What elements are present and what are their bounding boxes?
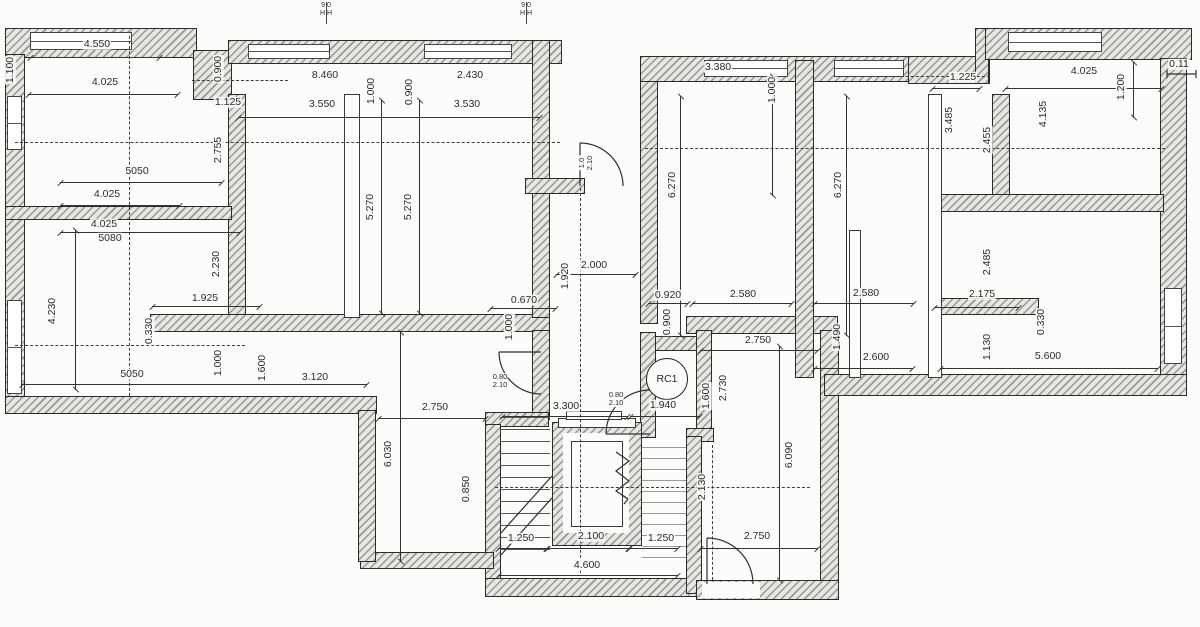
dimension-label: 2.430 [456, 70, 484, 81]
dimension-label: 0.900 [213, 55, 224, 83]
dimension-label: 2.580 [729, 289, 757, 300]
dimension-label: 1.920 [560, 262, 571, 290]
dimension-label: 1.200 [1116, 73, 1127, 101]
dimension-label: 0.900 [404, 78, 415, 106]
dimension-label: 2.750 [743, 531, 771, 542]
dimension-label: 4.025 [1070, 66, 1098, 77]
dimension-label: 0.330 [1036, 308, 1047, 336]
dimension-label: 5.270 [403, 193, 414, 221]
dimension-label: 4.025 [91, 77, 119, 88]
window-marker-label: 9 0 H H [320, 2, 332, 17]
dimension-label: 5080 [97, 233, 122, 244]
dimension-label: 5.270 [365, 193, 376, 221]
dimension-label: 0.11 [1168, 59, 1190, 70]
door-size-tag: 0.80 2.10 [609, 391, 624, 407]
dimension-label: 5050 [124, 166, 149, 177]
dimension-label: 3.120 [301, 372, 329, 383]
dimension-label: 8.460 [311, 70, 339, 81]
door-size-tag: 0.80 2.10 [493, 373, 508, 389]
dimension-label: 2.175 [968, 289, 996, 300]
stair-break-line [500, 476, 552, 556]
dimension-label: 3.530 [453, 99, 481, 110]
dimension-label: 1.000 [504, 313, 515, 341]
dimension-label: 2.600 [862, 352, 890, 363]
arrow-head [622, 495, 628, 504]
dimension-label: 1.490 [832, 323, 843, 351]
dimension-label: 6.270 [667, 171, 678, 199]
dimension-label: 2.100 [577, 531, 605, 542]
dimension-label: 1.925 [191, 293, 219, 304]
dimension-label: 2.000 [580, 260, 608, 271]
dimension-label: 1.100 [5, 56, 16, 84]
dimension-label: 4.600 [573, 560, 601, 571]
dimension-label: 4.025 [90, 219, 118, 230]
dimension-label: 2.755 [213, 136, 224, 164]
dimension-label: 1.225 [949, 72, 977, 83]
dimension-label: 0.920 [654, 290, 682, 301]
dimension-label: 6.270 [833, 171, 844, 199]
dimension-label: 1.000 [767, 76, 778, 104]
dimension-label: 2.230 [211, 250, 222, 278]
dimension-label: 1.250 [647, 533, 675, 544]
dimension-label: 1.940 [649, 400, 677, 411]
dimension-label: 1.000 [213, 349, 224, 377]
dimension-label: 4.135 [1038, 100, 1049, 128]
dimension-label: 3.300 [552, 401, 580, 412]
dimension-label: 1.125 [214, 97, 242, 108]
stair-direction-arrow [616, 452, 629, 499]
dimension-label: 2.750 [744, 335, 772, 346]
dimension-label: 6.030 [383, 440, 394, 468]
dimension-label: 1.130 [982, 333, 993, 361]
dimension-label: 2.130 [697, 473, 708, 501]
floor-plan-canvas: RC1 4.5504.0251.1258.4603.5502.4303.5303… [0, 0, 1200, 627]
dimension-label: 2.750 [421, 402, 449, 413]
dimension-label: 1.250 [507, 533, 535, 544]
dimension-label: 0.670 [510, 295, 538, 306]
dimension-label: 6.090 [784, 441, 795, 469]
dimension-label: 3.550 [308, 99, 336, 110]
dimension-label: 5050 [119, 369, 144, 380]
dimension-label: 2.455 [982, 126, 993, 154]
dimension-label: 1.600 [701, 382, 712, 410]
window-marker-label: 9 0 H H [520, 2, 532, 17]
dimension-label: 0.850 [461, 475, 472, 503]
dimension-label: 4.025 [93, 189, 121, 200]
dimension-label: 0.900 [662, 308, 673, 336]
door-size-tag: 1.0 2.10 [578, 156, 594, 171]
dimension-label: 4.550 [83, 39, 111, 50]
dimension-label: 1.600 [257, 354, 268, 382]
dimension-label: 3.485 [944, 106, 955, 134]
rc1-shaft-label: RC1 [646, 358, 688, 400]
door-arc [707, 538, 753, 584]
dimension-label: 5.600 [1034, 351, 1062, 362]
dimension-label: 1.000 [366, 77, 377, 105]
dimension-label: 0.330 [144, 317, 155, 345]
offset-arrow [1167, 70, 1196, 78]
dimension-label: 4.230 [47, 297, 58, 325]
dimension-label: 2.485 [982, 248, 993, 276]
dimension-label: 2.730 [718, 374, 729, 402]
dimension-label: 2.580 [852, 288, 880, 299]
dimension-label: 3.380 [704, 62, 732, 73]
